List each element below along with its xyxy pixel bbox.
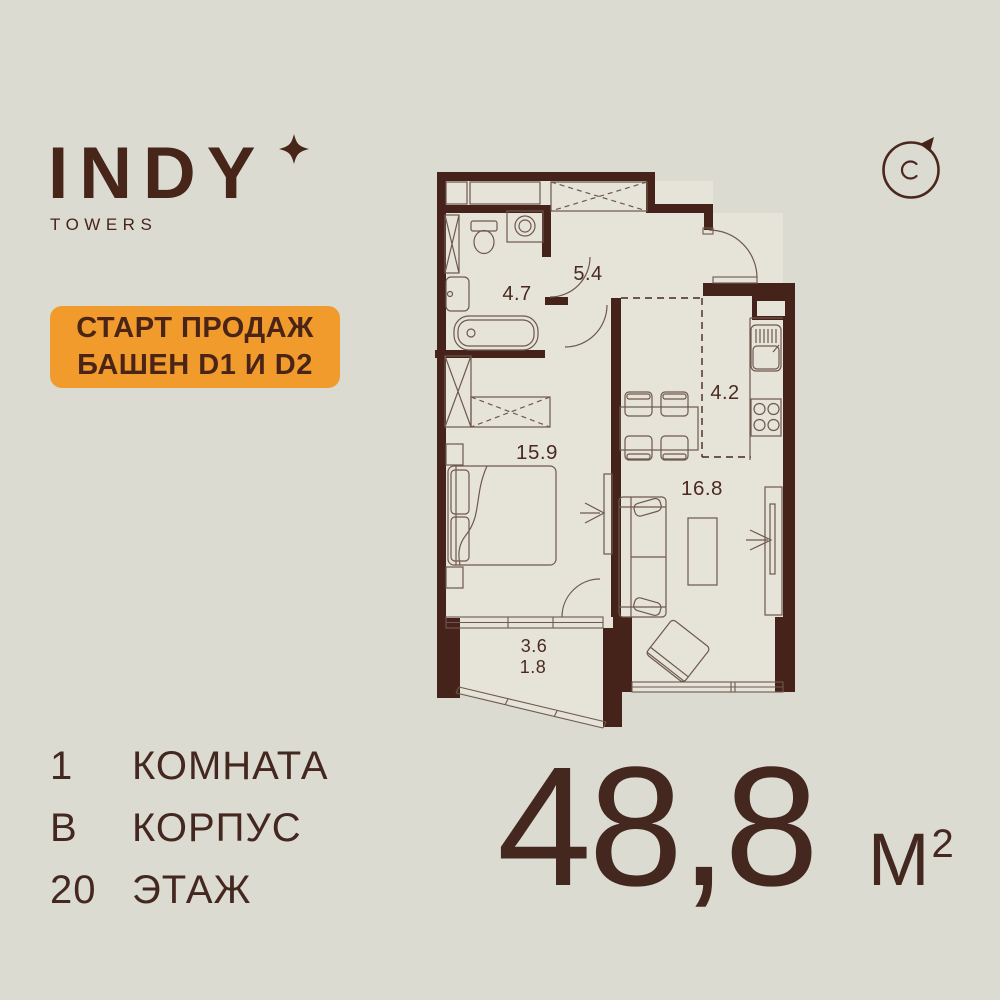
spec-value-floor: 20 xyxy=(50,868,132,913)
sparkle-icon xyxy=(279,134,309,164)
shaft-niche xyxy=(757,301,785,316)
total-area: 48,8 М2 xyxy=(497,742,967,912)
room-label-bedroom: 15.9 xyxy=(516,441,558,464)
floor-plan: 4.7 5.4 4.2 15.9 16.8 3.6 1.8 xyxy=(400,140,820,740)
listing-card: INDY TOWERS СТАРТ ПРОДАЖ БАШЕН D1 И D2 xyxy=(0,0,1000,1000)
area-unit: М2 xyxy=(868,817,954,902)
spec-label-building: КОРПУС xyxy=(132,806,329,851)
room-label-hallway: 5.4 xyxy=(573,263,602,285)
promo-line-1: СТАРТ ПРОДАЖ xyxy=(76,310,314,347)
room-label-living-room: 16.8 xyxy=(681,477,723,500)
spec-value-rooms: 1 xyxy=(50,744,132,789)
compass-icon xyxy=(874,132,950,208)
apartment-specs: 1 КОМНАТА В КОРПУС 20 ЭТАЖ xyxy=(50,744,329,913)
spec-value-building: В xyxy=(50,806,132,851)
brand-subtitle: TOWERS xyxy=(50,215,157,234)
promo-line-2: БАШЕН D1 И D2 xyxy=(77,347,313,384)
brand-name: INDY xyxy=(48,133,266,214)
area-value: 48,8 xyxy=(497,742,816,912)
room-label-kitchen: 4.2 xyxy=(710,382,739,404)
compass-letter-c xyxy=(902,162,917,179)
room-label-balcony-reduced: 1.8 xyxy=(520,657,547,677)
room-label-bathroom: 4.7 xyxy=(502,283,531,305)
room-label-balcony: 3.6 xyxy=(521,636,548,656)
compass-needle xyxy=(920,137,934,152)
promo-badge: СТАРТ ПРОДАЖ БАШЕН D1 И D2 xyxy=(50,306,340,388)
area-unit-exponent: 2 xyxy=(932,822,954,866)
spec-label-floor: ЭТАЖ xyxy=(132,868,329,913)
brand-logo: INDY TOWERS xyxy=(48,132,348,242)
spec-label-rooms: КОМНАТА xyxy=(132,744,329,789)
